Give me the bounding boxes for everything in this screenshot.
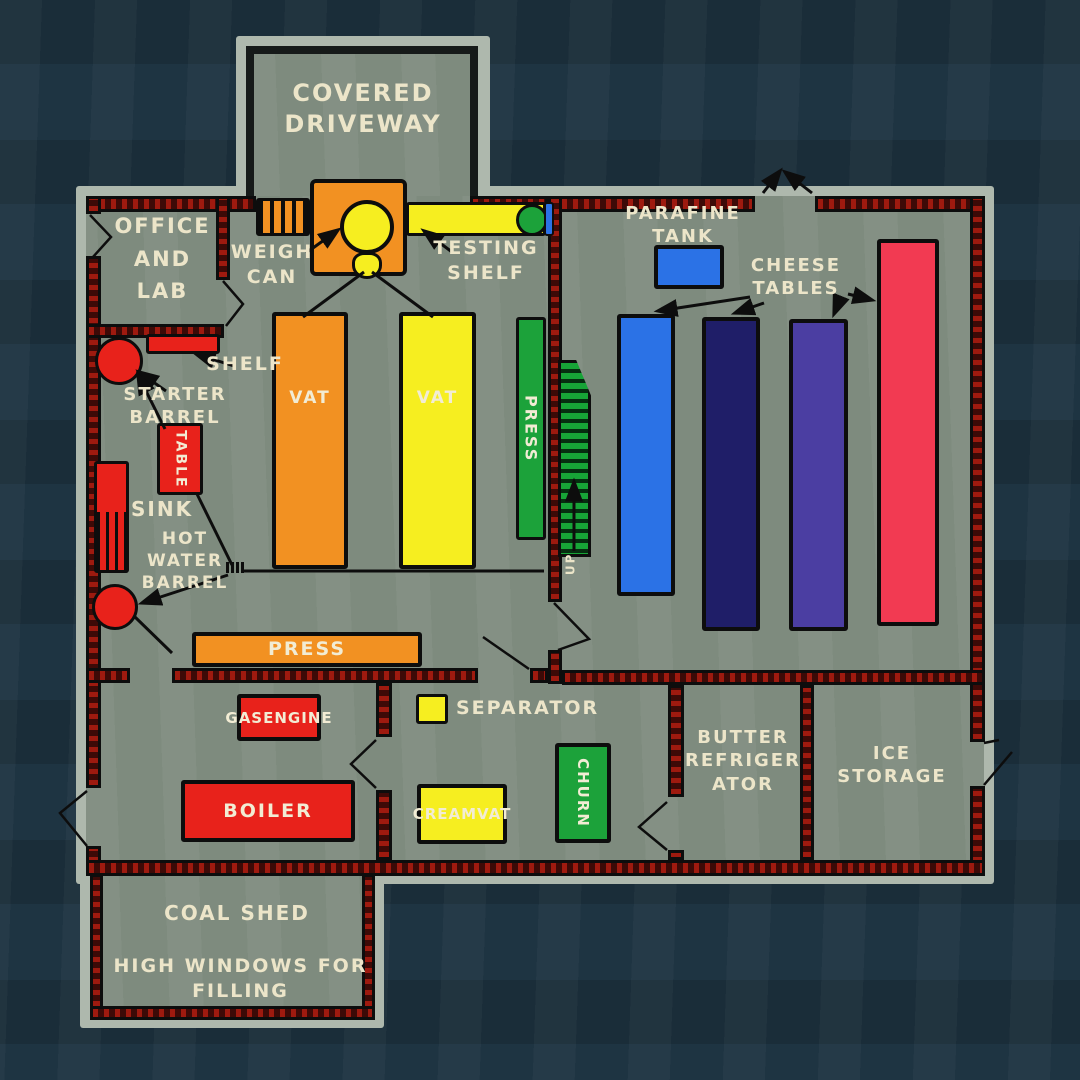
sink-hatch bbox=[97, 512, 126, 570]
press-vertical: PRESS bbox=[516, 317, 546, 540]
wall-coal-left bbox=[90, 874, 103, 1020]
wall-horizontal-b bbox=[172, 668, 478, 683]
label-butter-refrigerator: BUTTERREFRIGERATOR bbox=[681, 726, 805, 796]
shelf-red bbox=[146, 334, 220, 354]
label-office-and-lab: OFFICEANDLAB bbox=[105, 210, 220, 308]
boiler-rect: BOILER bbox=[181, 780, 355, 842]
label-ice-storage: ICESTORAGE bbox=[836, 742, 948, 789]
vat-left: VAT bbox=[272, 312, 348, 569]
wall-separator-left-b bbox=[376, 790, 392, 860]
wall-horizontal-c bbox=[530, 668, 548, 683]
wall-cheese-room-bottom bbox=[562, 670, 985, 685]
weigh-can-spout bbox=[352, 252, 382, 279]
label-parafine-tank: PARAFINETANK bbox=[618, 202, 748, 249]
label-high-windows: HIGH WINDOWS FORFILLING bbox=[108, 954, 373, 1003]
starter-barrel-circle bbox=[95, 337, 143, 385]
gas-engine-rect: GASENGINE bbox=[237, 694, 321, 741]
wall-bottom bbox=[86, 860, 985, 876]
cheese-table-purple bbox=[789, 319, 848, 631]
cheese-table-blue bbox=[617, 314, 675, 596]
separator-square bbox=[416, 694, 448, 724]
sink-red bbox=[94, 461, 129, 573]
cheese-table-navy bbox=[702, 317, 760, 631]
wall-separator-left-a bbox=[376, 683, 392, 737]
driveway-wall-right bbox=[470, 46, 478, 196]
testing-shelf-blue-end bbox=[544, 202, 554, 236]
driveway-wall-left bbox=[246, 46, 254, 196]
wall-top-d bbox=[815, 196, 985, 212]
label-stairs-up: UP bbox=[556, 556, 586, 572]
label-coal-shed: COAL SHED bbox=[152, 900, 322, 926]
label-starter-barrel: STARTERBARREL bbox=[110, 383, 240, 430]
label-separator: SEPARATOR bbox=[456, 696, 596, 721]
cream-vat-rect: CREAMVAT bbox=[417, 784, 507, 844]
press-bar-label: PRESS bbox=[268, 638, 346, 661]
table-label: TABLE bbox=[172, 430, 189, 488]
boiler-label: BOILER bbox=[223, 800, 312, 823]
label-covered-driveway: COVEREDDRIVEWAY bbox=[268, 78, 458, 140]
label-sink: SINK bbox=[131, 496, 193, 522]
weigh-ramp bbox=[256, 198, 310, 236]
label-shelf: SHELF bbox=[200, 352, 290, 377]
cream-vat-label: CREAMVAT bbox=[413, 805, 512, 823]
parafine-tank-rect bbox=[654, 245, 724, 289]
wall-butter-left-b bbox=[668, 850, 684, 860]
floor-plan-painting: VAT VAT PRESS TABLE PRESS GASENGINE BOIL… bbox=[0, 0, 1080, 1080]
label-cheese-tables: CHEESETABLES bbox=[742, 254, 850, 301]
wall-right-a bbox=[970, 196, 985, 742]
label-hot-water-barrel: HOTWATERBARREL bbox=[130, 528, 240, 594]
wall-coal-bottom bbox=[90, 1006, 375, 1020]
wall-mid-vertical-b bbox=[548, 650, 562, 684]
vat-right: VAT bbox=[399, 312, 476, 569]
label-testing-shelf: TESTINGSHELF bbox=[430, 236, 542, 285]
wall-left-a bbox=[86, 196, 101, 214]
label-weigh-can: WEIGHCAN bbox=[226, 240, 318, 289]
gas-engine-label: GASENGINE bbox=[225, 709, 332, 727]
wall-horizontal-a bbox=[86, 668, 130, 683]
press-bar: PRESS bbox=[192, 632, 422, 667]
weigh-can-circle bbox=[340, 200, 394, 254]
driveway-wall-top bbox=[246, 46, 478, 54]
vat-right-label: VAT bbox=[417, 316, 458, 408]
vat-left-label: VAT bbox=[289, 316, 330, 408]
churn-rect: CHURN bbox=[555, 743, 611, 843]
press-vertical-label: PRESS bbox=[521, 395, 540, 462]
table-red: TABLE bbox=[157, 423, 203, 495]
stairs-up bbox=[558, 360, 591, 557]
churn-label: CHURN bbox=[574, 758, 592, 828]
cheese-table-crimson bbox=[877, 239, 939, 626]
